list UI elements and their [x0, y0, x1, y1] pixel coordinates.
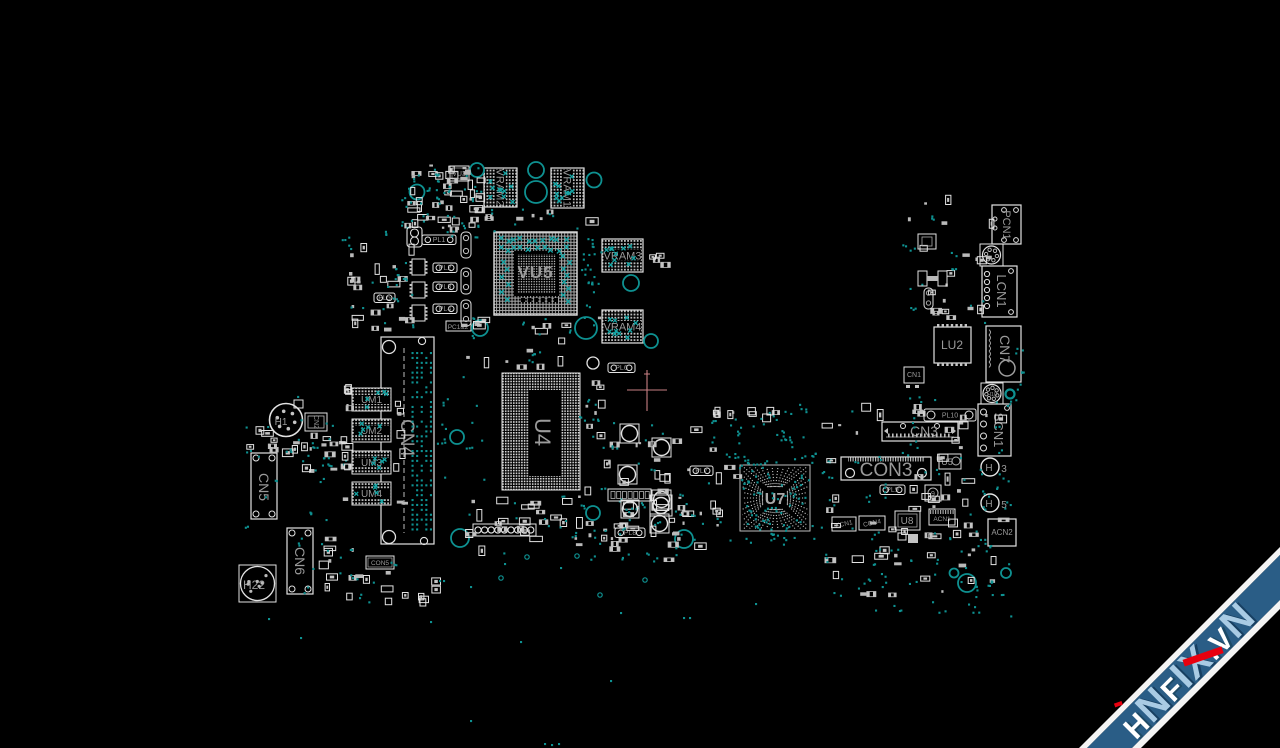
- svg-text:UM1: UM1: [361, 395, 383, 406]
- svg-text:PL1: PL1: [433, 237, 446, 244]
- svg-text:H: H: [985, 499, 992, 510]
- svg-text:PL5: PL5: [378, 295, 391, 302]
- svg-text:H: H: [985, 463, 992, 474]
- svg-text:H22: H22: [243, 578, 265, 592]
- svg-text:PL9: PL9: [886, 487, 899, 494]
- svg-text:VU5: VU5: [517, 263, 553, 282]
- svg-text:CON5: CON5: [371, 560, 389, 567]
- svg-text:CN6: CN6: [292, 547, 308, 575]
- svg-text:PL10: PL10: [942, 413, 958, 420]
- svg-text:U8: U8: [901, 516, 914, 527]
- svg-text:PL2: PL2: [439, 265, 452, 272]
- svg-text:H10: H10: [987, 392, 997, 398]
- svg-text:CON3: CON3: [860, 460, 913, 481]
- svg-text:CN5: CN5: [256, 473, 272, 501]
- svg-text:PL3: PL3: [439, 284, 452, 291]
- svg-text:H1: H1: [275, 417, 288, 428]
- svg-text:UM4: UM4: [361, 489, 383, 500]
- svg-text:CN2: CN2: [312, 415, 319, 429]
- svg-text:3: 3: [1001, 464, 1007, 475]
- svg-text:ACN2: ACN2: [991, 528, 1013, 537]
- svg-text:U7: U7: [765, 491, 786, 508]
- svg-text:CN1: CN1: [907, 372, 921, 379]
- svg-text:U4: U4: [530, 418, 555, 446]
- svg-text:PL4: PL4: [439, 306, 452, 313]
- svg-text:PL7: PL7: [695, 468, 708, 475]
- svg-text:PL8: PL8: [624, 530, 637, 537]
- svg-text:LU2: LU2: [941, 338, 963, 352]
- svg-text:SCN1: SCN1: [991, 413, 1006, 448]
- svg-text:LCN1: LCN1: [994, 274, 1009, 307]
- svg-text:PL6: PL6: [615, 365, 628, 372]
- svg-text:CN7: CN7: [997, 335, 1013, 363]
- svg-text:9: 9: [931, 491, 935, 498]
- svg-text:PCN1: PCN1: [1000, 210, 1012, 239]
